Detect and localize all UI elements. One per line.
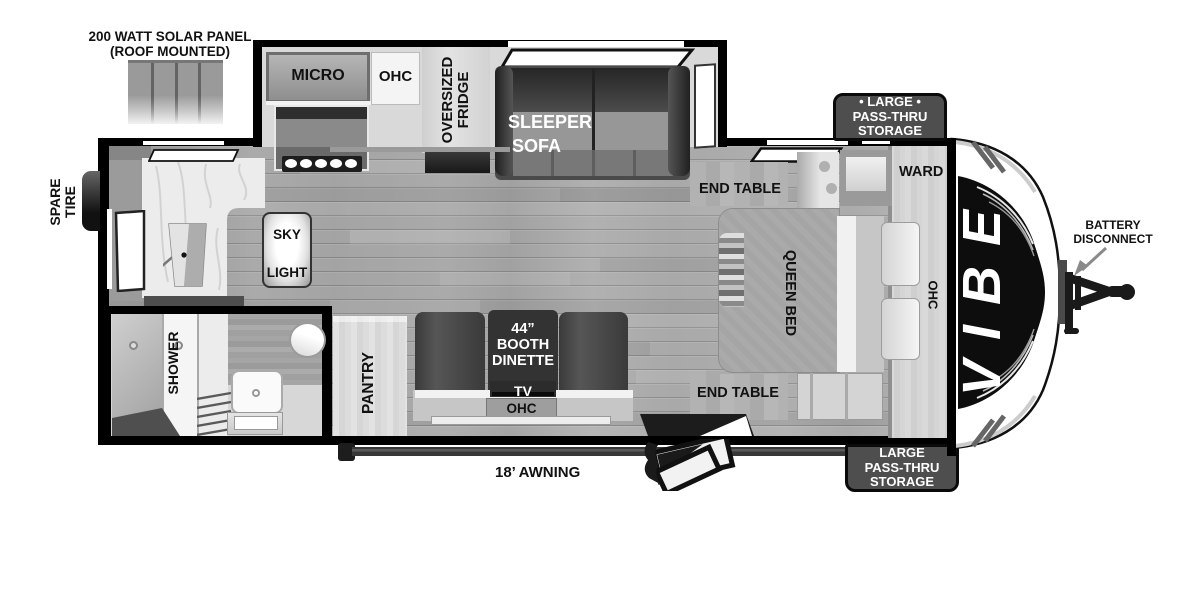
svg-text:VIBE: VIBE xyxy=(952,190,1012,396)
